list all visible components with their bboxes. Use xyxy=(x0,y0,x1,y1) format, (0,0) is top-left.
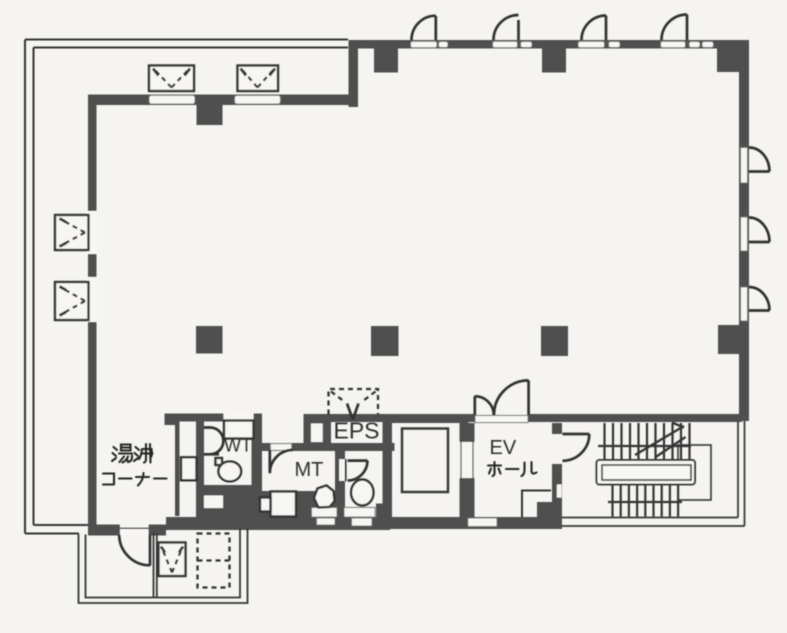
svg-text:MT: MT xyxy=(295,459,324,481)
svg-text:EPS: EPS xyxy=(334,418,380,444)
svg-text:WT: WT xyxy=(224,436,252,456)
svg-text:EV: EV xyxy=(490,437,517,459)
